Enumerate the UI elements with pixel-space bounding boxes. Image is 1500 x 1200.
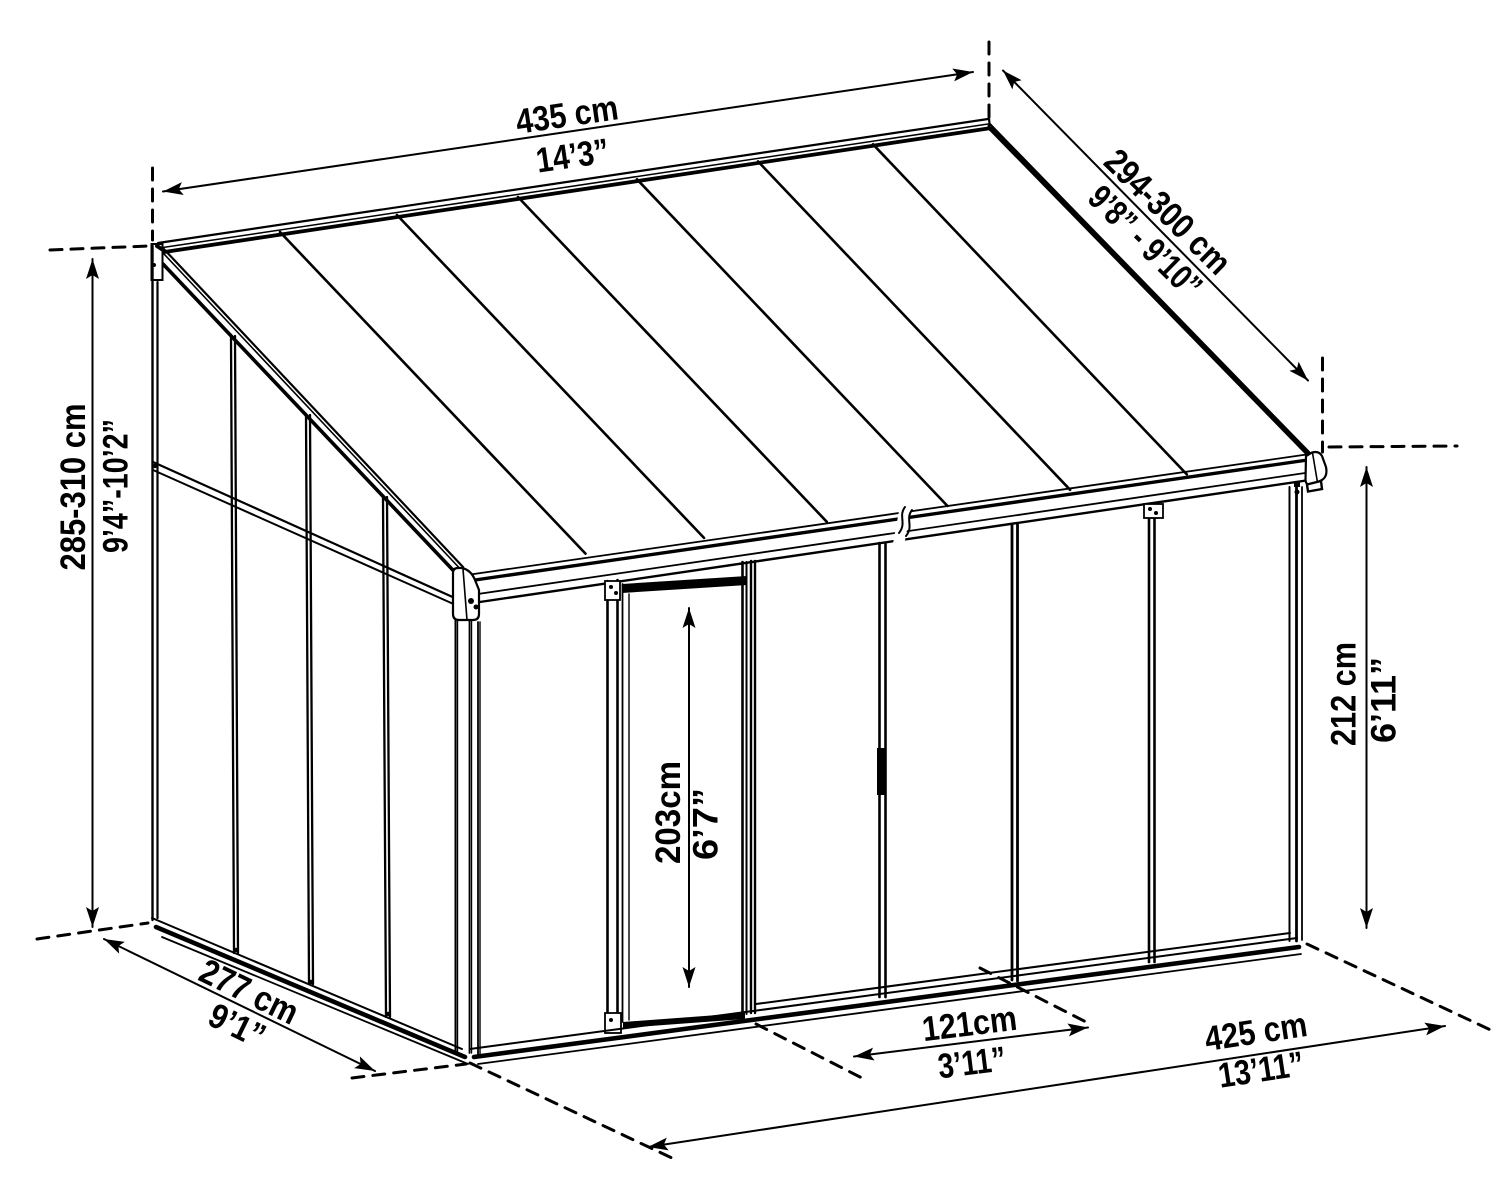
svg-text:6’11”: 6’11”	[1365, 657, 1404, 743]
svg-text:6’7”: 6’7”	[687, 788, 726, 860]
svg-text:203cm: 203cm	[649, 761, 688, 864]
svg-text:212 cm: 212 cm	[1325, 642, 1364, 746]
svg-text:9’4”-10’2”: 9’4”-10’2”	[97, 419, 136, 553]
svg-text:3’11”: 3’11”	[936, 1040, 1008, 1087]
svg-text:285-310 cm: 285-310 cm	[54, 404, 93, 571]
